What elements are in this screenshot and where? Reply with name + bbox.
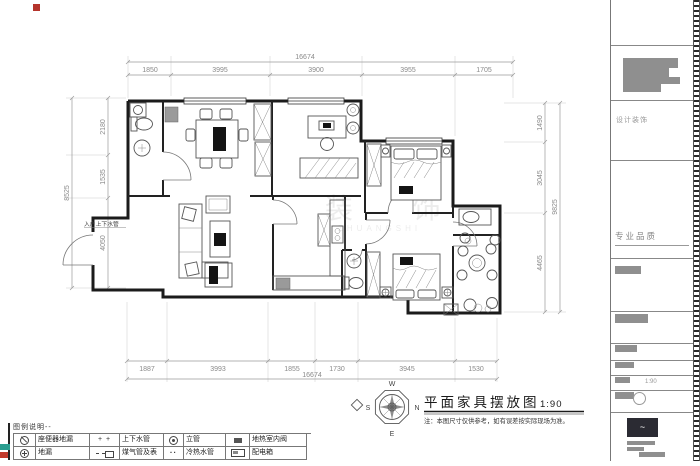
- dim-left-1: 2180: [100, 119, 107, 135]
- legend-label: 配电箱: [250, 447, 307, 460]
- drawing-scale: 1:90: [540, 399, 563, 410]
- desk-chair: [321, 138, 334, 151]
- dim-left-2: 1535: [100, 169, 107, 185]
- dim-right-total: 9825: [552, 199, 559, 215]
- dim-right-1: 1490: [537, 115, 544, 131]
- dim-left-3: 4050: [100, 235, 107, 251]
- round-table: [469, 255, 485, 271]
- decorative-border-strip: [693, 0, 700, 461]
- dim-right-3: 4465: [537, 255, 544, 271]
- distribution-box-icon: [231, 449, 245, 457]
- dim-bot-4: 1730: [329, 366, 345, 373]
- legend-label: 煤气管及表: [120, 447, 164, 460]
- legend-label: 上下水管: [120, 434, 164, 447]
- diamond-mark: [351, 399, 362, 410]
- stove: [276, 278, 290, 289]
- dim-bot-2: 3993: [210, 366, 226, 373]
- compass-e: E: [390, 431, 395, 438]
- info-bar: [615, 362, 634, 368]
- dim-top-1: 1850: [142, 67, 158, 74]
- info-bar: [615, 266, 641, 274]
- cad-floorplan-screenshot: { "drawing": { "title": "平面家具摆放图", "scal…: [0, 0, 700, 461]
- floorplan-svg: 16674 1850 3995 3900 3955 1705 1887 3993…: [0, 0, 610, 461]
- compass-n: N: [414, 405, 419, 412]
- info-bar: [615, 314, 648, 323]
- drawing-title-block: 平面家具摆放图 1:90 注：本图尺寸仅供参考，如有误差按实际现场为准。: [424, 394, 584, 425]
- watermark-en: ZHUANGSHI: [338, 224, 421, 233]
- dim-bot-total: 16674: [302, 372, 322, 379]
- legend-label: 地漏: [36, 447, 90, 460]
- bathroom-top: [130, 103, 153, 156]
- tv: [400, 257, 413, 265]
- tv: [399, 186, 413, 194]
- legend-title: 图例说明--: [13, 423, 311, 433]
- water-pipes-icon: + +: [98, 434, 111, 446]
- stamp-circle: [633, 392, 646, 405]
- legend-panel: 图例说明-- 座便器地漏 + + 上下水管 立管 地热室内阀 地漏 煤气管及表 …: [8, 423, 311, 460]
- artifact-mark: [0, 444, 10, 450]
- gas-meter-icon: [96, 450, 113, 457]
- toilet-drain-icon: [20, 436, 29, 445]
- plant: [347, 122, 359, 134]
- legend-label: 座便器地漏: [36, 434, 90, 447]
- dim-left-total: 8525: [64, 185, 71, 201]
- dim-top-3: 3900: [308, 67, 324, 74]
- entry-label: 入户上下水管: [84, 220, 126, 228]
- quality-label: 专业品质: [615, 230, 689, 246]
- legend-label: 冷热水管: [184, 447, 226, 460]
- riser-pipe-icon: [169, 436, 178, 445]
- design-label: 设计装饰: [616, 115, 648, 125]
- plant: [487, 298, 498, 309]
- dim-top-5: 1705: [476, 67, 492, 74]
- company-logo: [623, 58, 678, 68]
- dim-bot-6: 1530: [468, 366, 484, 373]
- dining-room: [165, 107, 248, 168]
- titleblock-sidebar: 设计装饰 专业品质 1:90 ~: [610, 0, 700, 461]
- info-bar: [615, 377, 630, 383]
- compass-w: W: [389, 381, 396, 388]
- master-bedroom: [367, 252, 453, 300]
- artifact-mark: [33, 4, 40, 11]
- dim-top-4: 3955: [400, 67, 416, 74]
- tv: [209, 266, 218, 284]
- hot-cold-pipes-icon: ··: [170, 447, 177, 459]
- cabinet: [165, 107, 178, 122]
- plant: [347, 104, 359, 116]
- dim-top-total: 16674: [295, 54, 315, 61]
- info-bar: [627, 441, 655, 445]
- dim-bot-3: 1855: [284, 366, 300, 373]
- company-seal: ~: [627, 418, 658, 437]
- legend-label: 地热室内阀: [250, 434, 307, 447]
- info-bar: [639, 452, 665, 457]
- hall-closets: [254, 104, 271, 176]
- dim-right-2: 3045: [537, 170, 544, 186]
- info-bar: [615, 392, 634, 399]
- study-room: [300, 104, 359, 178]
- bedroom-top: [367, 144, 451, 200]
- artifact-mark: [0, 452, 8, 458]
- info-bar: [615, 345, 637, 352]
- armchair: [206, 196, 230, 213]
- floorplan-canvas: 16674 1850 3995 3900 3955 1705 1887 3993…: [0, 0, 610, 461]
- bed: [391, 146, 441, 200]
- legend-label: 立管: [184, 434, 226, 447]
- floor-drain-icon: [20, 449, 29, 458]
- compass-rose: W E S N: [351, 381, 419, 438]
- living-room: [179, 196, 232, 287]
- compass-s: S: [366, 405, 371, 412]
- dim-bot-5: 3945: [399, 366, 415, 373]
- drawing-title: 平面家具摆放图: [424, 394, 540, 410]
- dim-top-2: 3995: [212, 67, 228, 74]
- dimension-lines: [70, 60, 562, 381]
- daybed: [300, 158, 358, 178]
- bathroom-bottom: [344, 254, 363, 289]
- legend-table: 座便器地漏 + + 上下水管 立管 地热室内阀 地漏 煤气管及表 ·· 冷热水管…: [13, 433, 311, 460]
- drawing-note: 注：本图尺寸仅供参考，如有误差按实际现场为准。: [424, 416, 569, 425]
- entry-pipes-label: 入户上下水管: [84, 220, 119, 228]
- dim-bot-1: 1887: [139, 366, 155, 373]
- heating-valve-icon: [234, 438, 242, 443]
- info-bar: [627, 447, 644, 451]
- sidebar-scale: 1:90: [645, 379, 657, 385]
